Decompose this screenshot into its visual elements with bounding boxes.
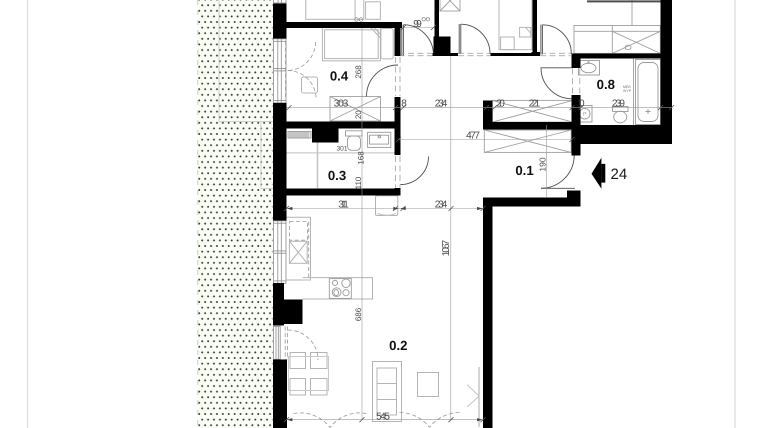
svg-text:0.3: 0.3 — [328, 168, 346, 183]
svg-text:24: 24 — [611, 166, 628, 183]
svg-text:0.2: 0.2 — [389, 338, 407, 353]
svg-text:110: 110 — [354, 176, 363, 189]
svg-text:0.8: 0.8 — [597, 77, 615, 92]
svg-text:8: 8 — [401, 99, 407, 110]
svg-text:20: 20 — [354, 110, 363, 119]
svg-text:WYP: WYP — [623, 89, 632, 93]
svg-text:234: 234 — [435, 200, 448, 211]
svg-text:0.1: 0.1 — [515, 163, 533, 178]
svg-text:P: P — [583, 112, 587, 118]
svg-text:477: 477 — [466, 131, 480, 142]
svg-text:99: 99 — [413, 19, 422, 30]
svg-text:1067: 1067 — [441, 239, 452, 256]
svg-text:303: 303 — [334, 99, 349, 110]
svg-text:311: 311 — [338, 200, 349, 211]
svg-text:0.4: 0.4 — [330, 69, 349, 84]
svg-text:301: 301 — [336, 145, 347, 152]
svg-text:268: 268 — [354, 65, 363, 79]
svg-text:545: 545 — [376, 411, 390, 422]
svg-text:686: 686 — [354, 307, 363, 321]
svg-text:239: 239 — [612, 99, 625, 110]
svg-text:190: 190 — [537, 157, 547, 171]
svg-text:221: 221 — [529, 99, 541, 110]
svg-text:20: 20 — [496, 99, 505, 110]
svg-text:168: 168 — [357, 151, 366, 165]
svg-text:10: 10 — [578, 99, 585, 110]
svg-text:234: 234 — [435, 99, 448, 110]
